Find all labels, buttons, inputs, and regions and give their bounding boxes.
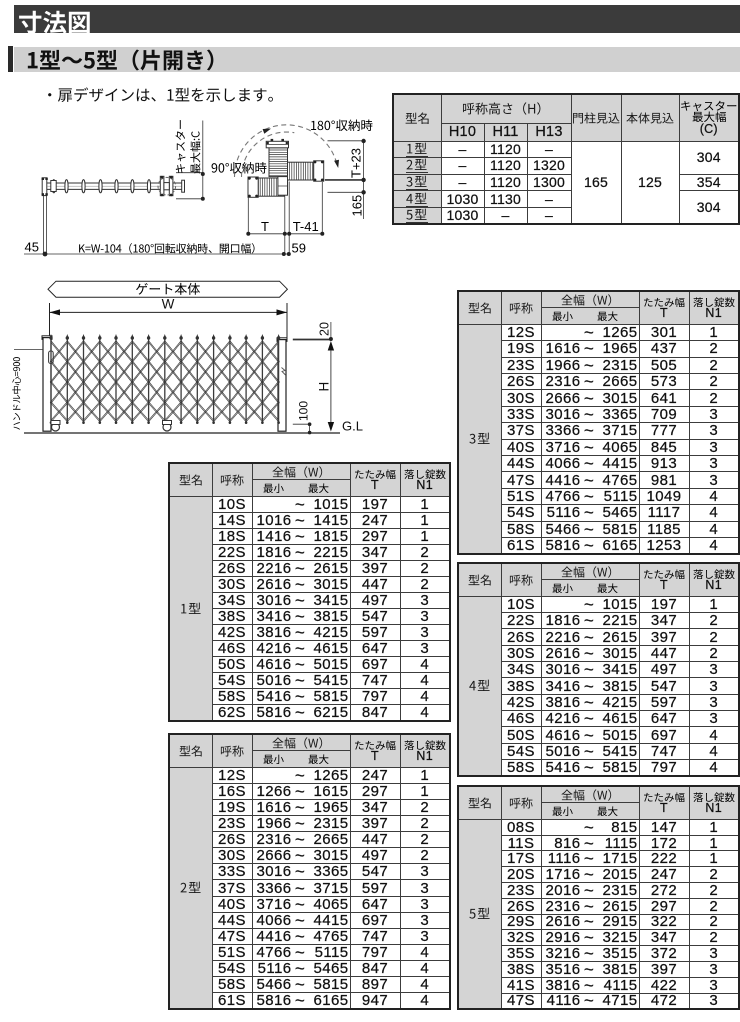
svg-text:H: H xyxy=(316,382,331,392)
svg-text:59: 59 xyxy=(292,241,306,256)
svg-text:W: W xyxy=(162,297,175,312)
svg-text:T-41: T-41 xyxy=(293,219,319,234)
svg-text:165: 165 xyxy=(350,195,365,217)
svg-text:45: 45 xyxy=(25,240,39,255)
svg-text:T: T xyxy=(261,219,269,234)
svg-text:G.L: G.L xyxy=(342,419,363,434)
svg-text:T+23: T+23 xyxy=(349,148,364,178)
svg-text:100: 100 xyxy=(297,401,311,421)
svg-text:20: 20 xyxy=(318,322,332,336)
